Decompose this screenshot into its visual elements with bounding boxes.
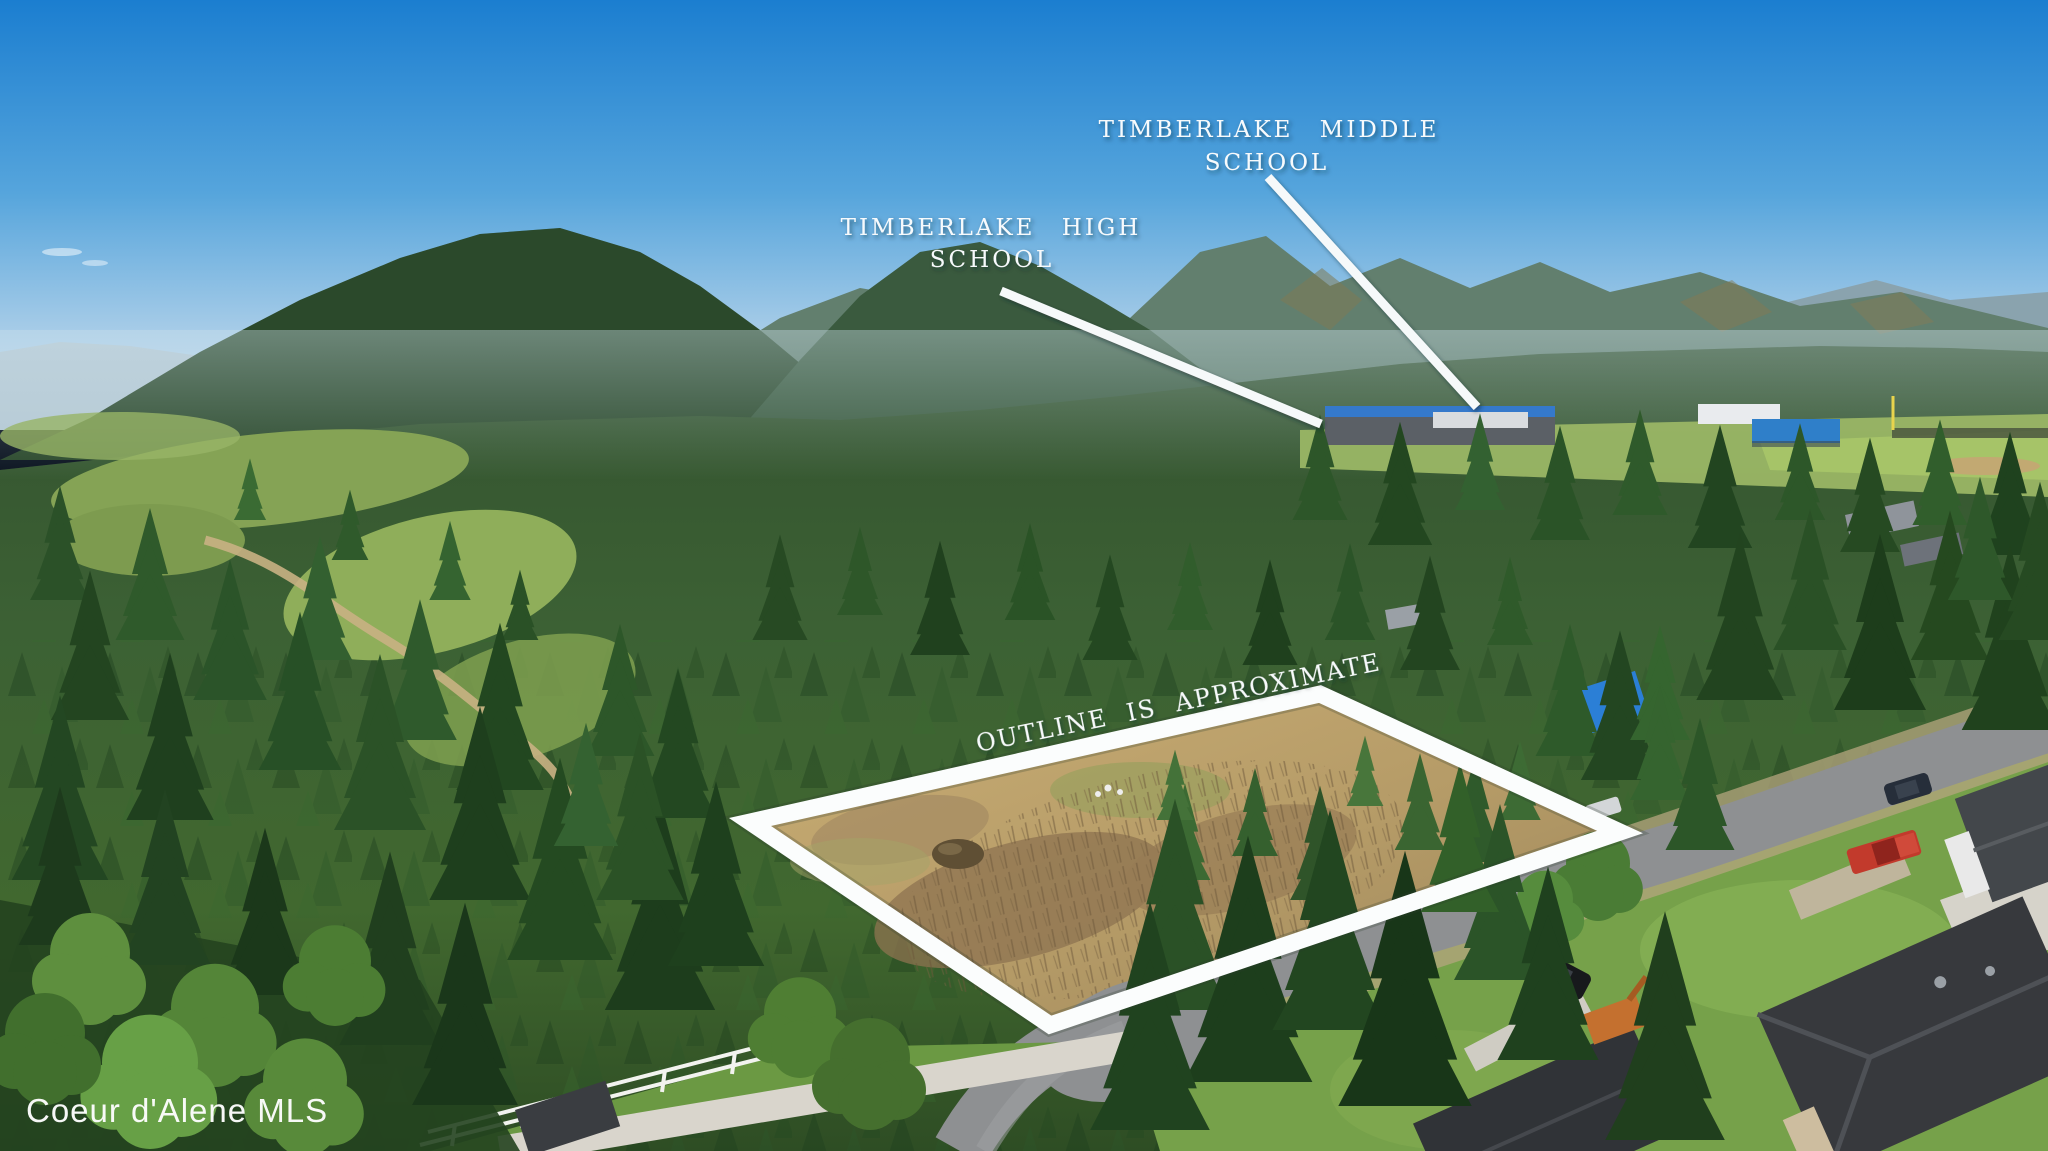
- label-high-school-line2: SCHOOL: [930, 247, 1054, 273]
- scene-canvas: TIMBERLAKE MIDDLE SCHOOL TIMBERLAKE HIGH…: [0, 0, 2048, 1151]
- aerial-listing-photo: TIMBERLAKE MIDDLE SCHOOL TIMBERLAKE HIGH…: [0, 0, 2048, 1151]
- label-high-school-line1: TIMBERLAKE HIGH: [841, 215, 1142, 241]
- debris-pile-top: [938, 843, 962, 855]
- debris-pile: [932, 839, 984, 869]
- cloud-wisp: [82, 260, 108, 266]
- field-backstop: [1892, 428, 2048, 438]
- label-middle-school-line2: SCHOOL: [1205, 150, 1329, 176]
- mls-watermark: Coeur d'Alene MLS: [26, 1092, 328, 1129]
- label-middle-school-line1: TIMBERLAKE MIDDLE: [1099, 117, 1440, 143]
- cloud-wisp: [42, 248, 82, 256]
